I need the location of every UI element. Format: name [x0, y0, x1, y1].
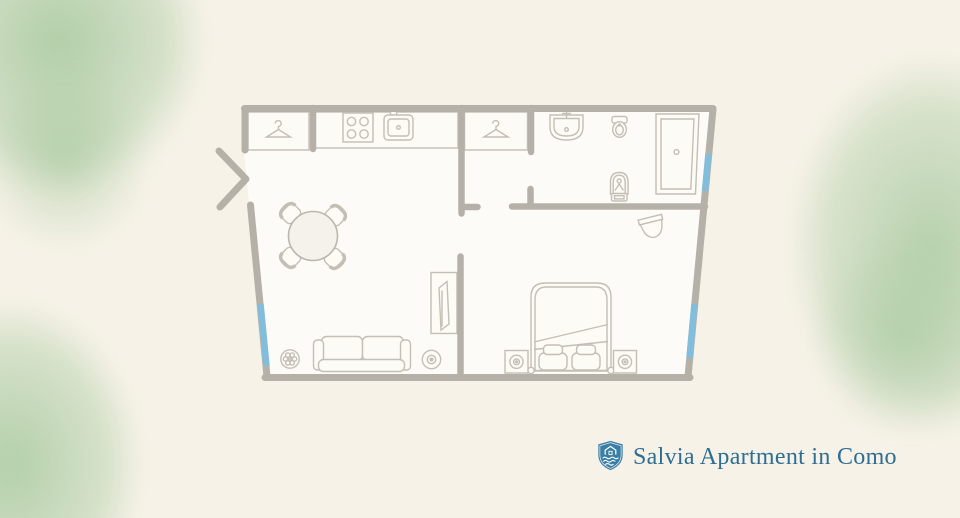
brand-logo-icon [597, 440, 624, 471]
entrance-arrow-icon [219, 151, 246, 207]
hallway-wardrobe [465, 112, 528, 150]
window-bathroom [705, 154, 709, 191]
pillow-right [572, 345, 600, 370]
round-dining-table [289, 212, 338, 261]
page-title: Salvia Apartment in Como [633, 443, 897, 469]
shower-icon [656, 114, 699, 194]
stove-icon [343, 113, 373, 142]
kitchen-counter [315, 111, 458, 149]
nightstand-right [614, 351, 637, 374]
kitchen-sink-icon [384, 111, 413, 141]
sofa-icon [314, 337, 411, 372]
double-bed-icon [527, 283, 615, 374]
washbasin-icon [550, 111, 583, 141]
bidet-icon [611, 173, 629, 202]
tv-unit-icon [431, 273, 457, 334]
brand-lockup: Salvia Apartment in Como [597, 440, 897, 471]
toilet-icon [612, 117, 627, 138]
entry-closet [248, 112, 309, 150]
floorplan-page: Salvia Apartment in Como [0, 0, 960, 518]
pillow-left [539, 345, 567, 370]
nightstand-left [505, 351, 528, 374]
